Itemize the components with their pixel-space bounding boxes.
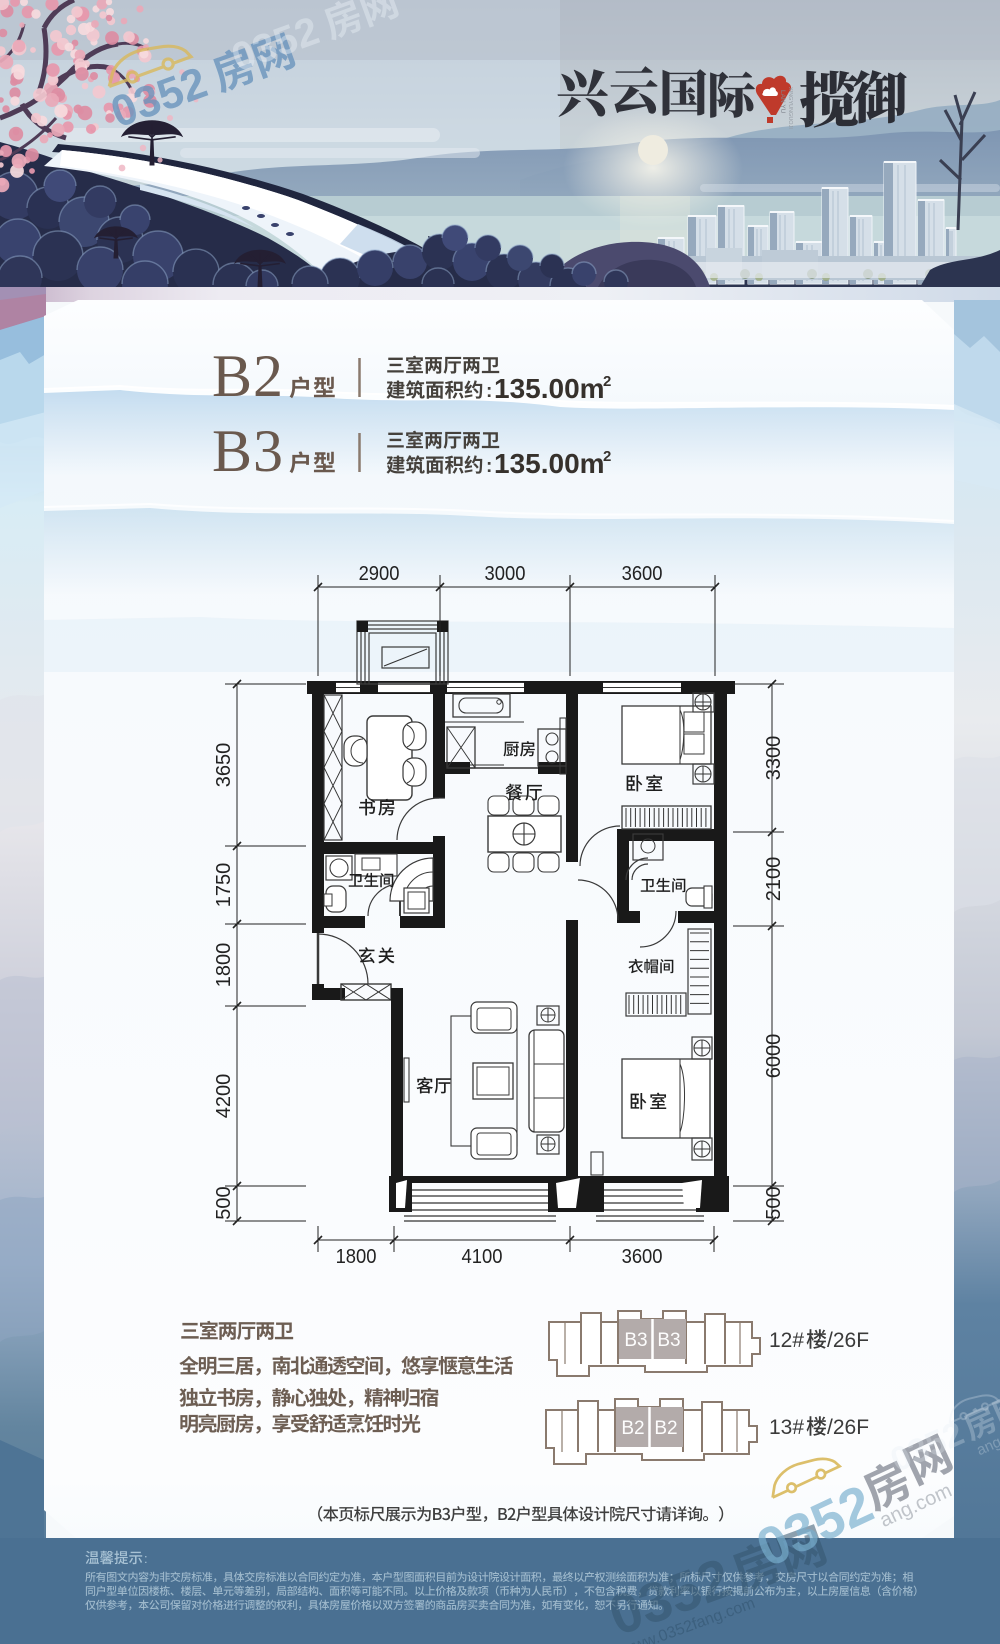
svg-text:12#: 12# — [769, 1329, 804, 1352]
svg-text:500: 500 — [213, 1186, 235, 1219]
svg-text:B2: B2 — [654, 1418, 677, 1439]
svg-text::: : — [486, 381, 492, 402]
svg-text:B3: B3 — [657, 1330, 680, 1351]
svg-text:2900: 2900 — [359, 563, 400, 585]
svg-text:1750: 1750 — [213, 863, 235, 908]
svg-text:2100: 2100 — [763, 857, 785, 902]
svg-text:LAN YU: LAN YU — [779, 90, 786, 114]
svg-text:B3: B3 — [624, 1330, 647, 1351]
svg-text:13#: 13# — [769, 1416, 804, 1439]
svg-text:3300: 3300 — [763, 736, 785, 781]
svg-text:3650: 3650 — [213, 743, 235, 788]
svg-text:3000: 3000 — [485, 563, 526, 585]
svg-text:B2: B2 — [212, 343, 284, 409]
svg-text:2: 2 — [603, 448, 611, 465]
svg-text:XINGYUNGUOJI: XINGYUNGUOJI — [787, 87, 793, 129]
svg-text:3600: 3600 — [622, 1246, 663, 1268]
svg-text:500: 500 — [763, 1186, 785, 1219]
svg-text:1800: 1800 — [213, 943, 235, 988]
svg-text:B2: B2 — [621, 1418, 644, 1439]
svg-text:6000: 6000 — [763, 1034, 785, 1079]
svg-text:/26F: /26F — [827, 1329, 869, 1352]
svg-text:2: 2 — [603, 373, 611, 390]
svg-text::: : — [144, 1551, 148, 1566]
svg-text:4200: 4200 — [213, 1074, 235, 1119]
svg-text:135.00m: 135.00m — [494, 373, 605, 404]
svg-text:B3: B3 — [212, 418, 284, 484]
svg-text:4100: 4100 — [462, 1246, 503, 1268]
svg-text:135.00m: 135.00m — [494, 448, 605, 479]
svg-text:3600: 3600 — [622, 563, 663, 585]
svg-text:1800: 1800 — [336, 1246, 377, 1268]
svg-text::: : — [486, 456, 492, 477]
svg-text:/26F: /26F — [827, 1416, 869, 1439]
